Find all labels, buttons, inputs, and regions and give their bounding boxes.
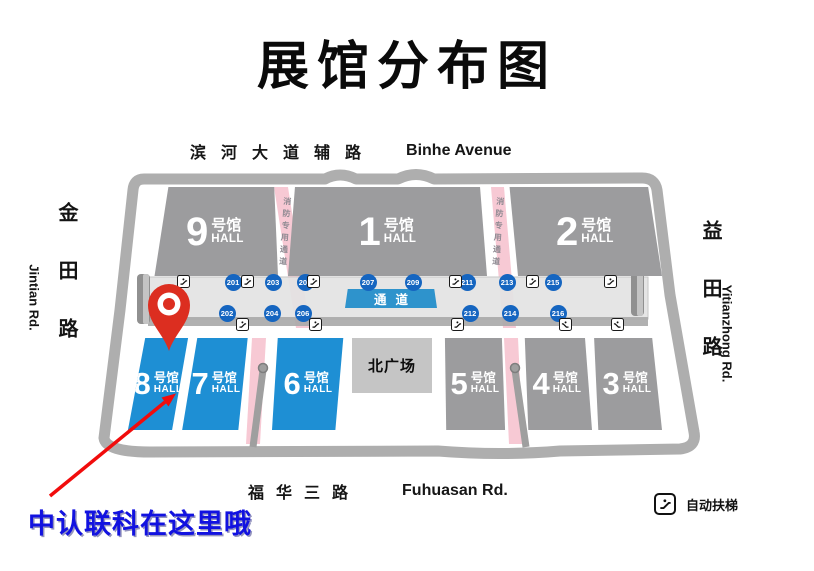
booth-214: 214: [502, 305, 519, 322]
escalator-icon: [449, 275, 462, 288]
highlight-caption: 中认联科在这里哦: [28, 502, 252, 541]
hall-9-hall: HALL: [211, 233, 244, 245]
hall-2-type: 号馆: [581, 218, 614, 234]
escalator-legend-label: 自动扶梯: [686, 495, 738, 514]
north-plaza: 北广场: [352, 338, 432, 393]
hall-6-hall: HALL: [304, 385, 333, 396]
escalator-icon: [177, 275, 190, 288]
hall-7-number: 7: [192, 370, 209, 398]
escalator-icon: [309, 318, 322, 331]
pillar-right-face: [637, 272, 643, 316]
booth-215: 215: [545, 274, 562, 291]
escalator-icon: [241, 275, 254, 288]
hall-4-number: 4: [533, 370, 550, 398]
hall-4: 4 号馆HALL: [522, 338, 592, 430]
hall-1: 1 号馆HALL: [288, 187, 487, 276]
escalator-icon: [236, 318, 249, 331]
hall-1-hall: HALL: [384, 233, 417, 245]
hall-5: 5 号馆HALL: [443, 338, 507, 430]
hall-9-number: 9: [186, 214, 208, 250]
booth-204: 204: [264, 305, 281, 322]
hall-3-hall: HALL: [623, 385, 652, 396]
escalator-legend-icon: [654, 493, 676, 515]
booth-203: 203: [265, 274, 282, 291]
hall-7-hall: HALL: [212, 385, 241, 396]
hall-1-type: 号馆: [384, 218, 417, 234]
booth-212: 212: [462, 305, 479, 322]
gate-dot-left: [259, 364, 268, 373]
hall-8-hall: HALL: [154, 385, 183, 396]
escalator-icon: [451, 318, 464, 331]
hall-5-number: 5: [451, 370, 468, 398]
hall-5-hall: HALL: [471, 385, 500, 396]
hall-9: 9 号馆HALL: [152, 187, 278, 276]
hall-3: 3 号馆HALL: [592, 338, 662, 430]
hall-9-type: 号馆: [211, 218, 244, 234]
hall-6-number: 6: [284, 370, 301, 398]
escalator-icon: [611, 318, 624, 331]
hall-4-hall: HALL: [553, 385, 582, 396]
hall-6: 6 号馆HALL: [272, 338, 344, 430]
hall-1-number: 1: [359, 214, 381, 250]
corridor-label: 通道: [345, 289, 437, 308]
exhibition-map-page: 展馆分布图 滨河大道辅路 Binhe Avenue 福华三路 Fuhuasan …: [0, 0, 814, 571]
escalator-icon: [526, 275, 539, 288]
booth-213: 213: [499, 274, 516, 291]
booth-209: 209: [405, 274, 422, 291]
hall-3-number: 3: [603, 370, 620, 398]
booth-207: 207: [360, 274, 377, 291]
pillar-left-face: [143, 274, 149, 324]
escalator-icon: [307, 275, 320, 288]
booth-201: 201: [225, 274, 242, 291]
escalator-icon: [559, 318, 572, 331]
hall-2-hall: HALL: [581, 233, 614, 245]
legend-escalator: 自动扶梯: [654, 493, 738, 515]
gate-dot-right: [511, 364, 520, 373]
booth-202: 202: [219, 305, 236, 322]
hall-2: 2 号馆HALL: [508, 187, 662, 276]
escalator-icon: [604, 275, 617, 288]
hall-2-number: 2: [556, 214, 578, 250]
